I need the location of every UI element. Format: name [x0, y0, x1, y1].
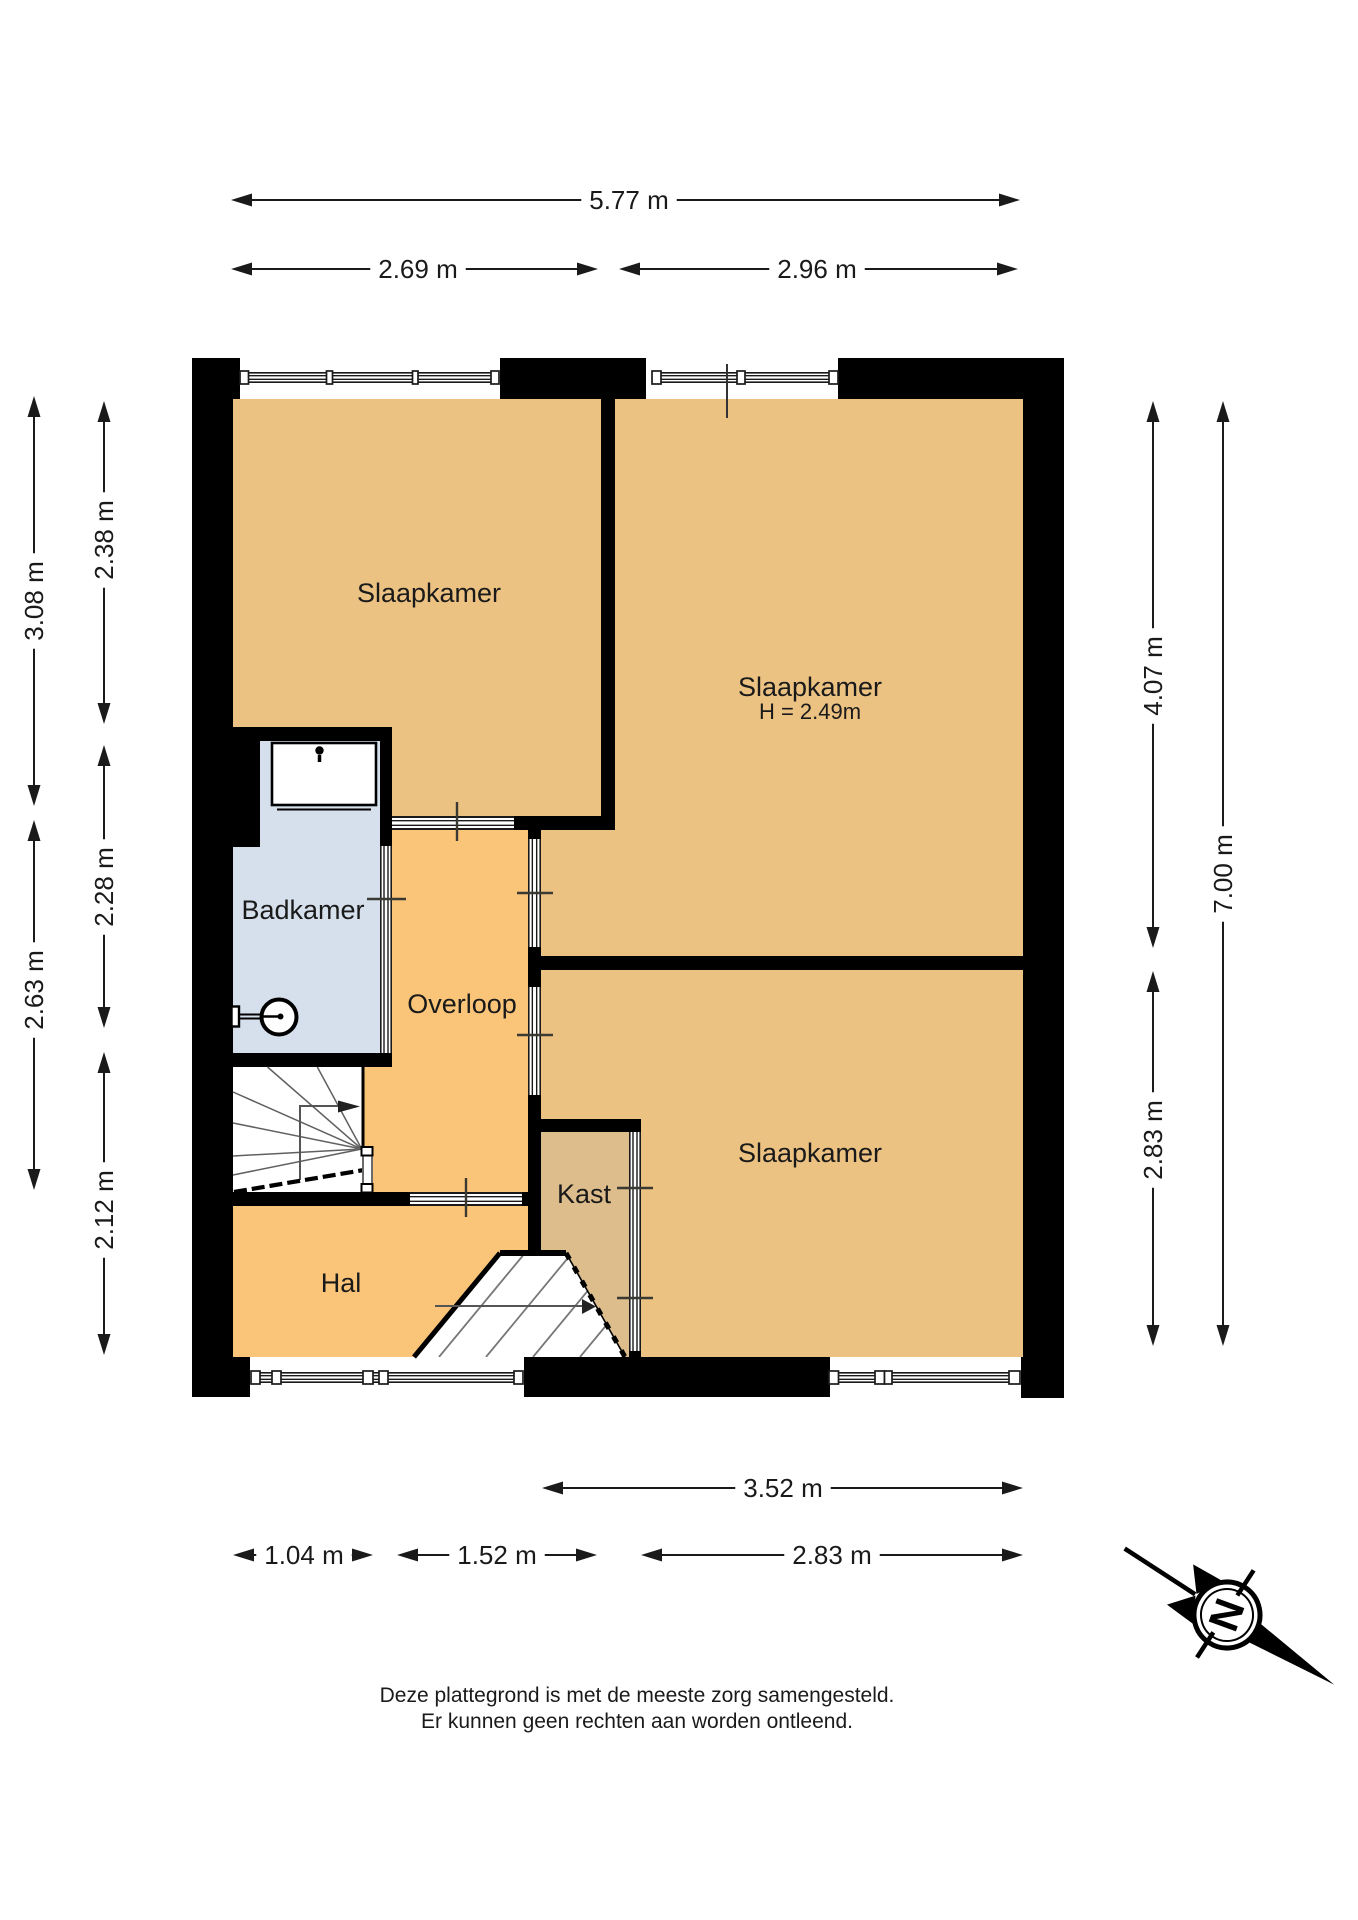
- svg-text:7.00 m: 7.00 m: [1208, 834, 1238, 914]
- svg-text:Deze plattegrond is met de mee: Deze plattegrond is met de meeste zorg s…: [380, 1684, 895, 1707]
- svg-text:1.52 m: 1.52 m: [457, 1540, 537, 1570]
- svg-text:3.52 m: 3.52 m: [743, 1473, 823, 1503]
- svg-text:4.07 m: 4.07 m: [1138, 636, 1168, 716]
- svg-text:2.28 m: 2.28 m: [89, 847, 119, 927]
- svg-text:Slaapkamer: Slaapkamer: [738, 672, 882, 702]
- svg-text:Overloop: Overloop: [407, 989, 517, 1019]
- svg-text:Er kunnen geen rechten aan wor: Er kunnen geen rechten aan worden ontlee…: [421, 1710, 853, 1733]
- svg-text:Slaapkamer: Slaapkamer: [738, 1138, 882, 1168]
- svg-text:2.83 m: 2.83 m: [1138, 1100, 1168, 1180]
- svg-text:5.77 m: 5.77 m: [589, 185, 669, 215]
- svg-text:Slaapkamer: Slaapkamer: [357, 578, 501, 608]
- svg-text:H = 2.49m: H = 2.49m: [759, 699, 861, 724]
- svg-text:3.08 m: 3.08 m: [19, 561, 49, 641]
- svg-text:2.63 m: 2.63 m: [19, 950, 49, 1030]
- svg-text:2.69 m: 2.69 m: [378, 254, 458, 284]
- svg-text:2.38 m: 2.38 m: [89, 500, 119, 580]
- svg-text:Badkamer: Badkamer: [241, 895, 364, 925]
- svg-text:2.12 m: 2.12 m: [89, 1170, 119, 1250]
- svg-text:2.83 m: 2.83 m: [792, 1540, 872, 1570]
- svg-text:1.04 m: 1.04 m: [264, 1540, 344, 1570]
- svg-text:Hal: Hal: [321, 1268, 362, 1298]
- svg-text:Kast: Kast: [557, 1179, 612, 1209]
- svg-text:2.96 m: 2.96 m: [777, 254, 857, 284]
